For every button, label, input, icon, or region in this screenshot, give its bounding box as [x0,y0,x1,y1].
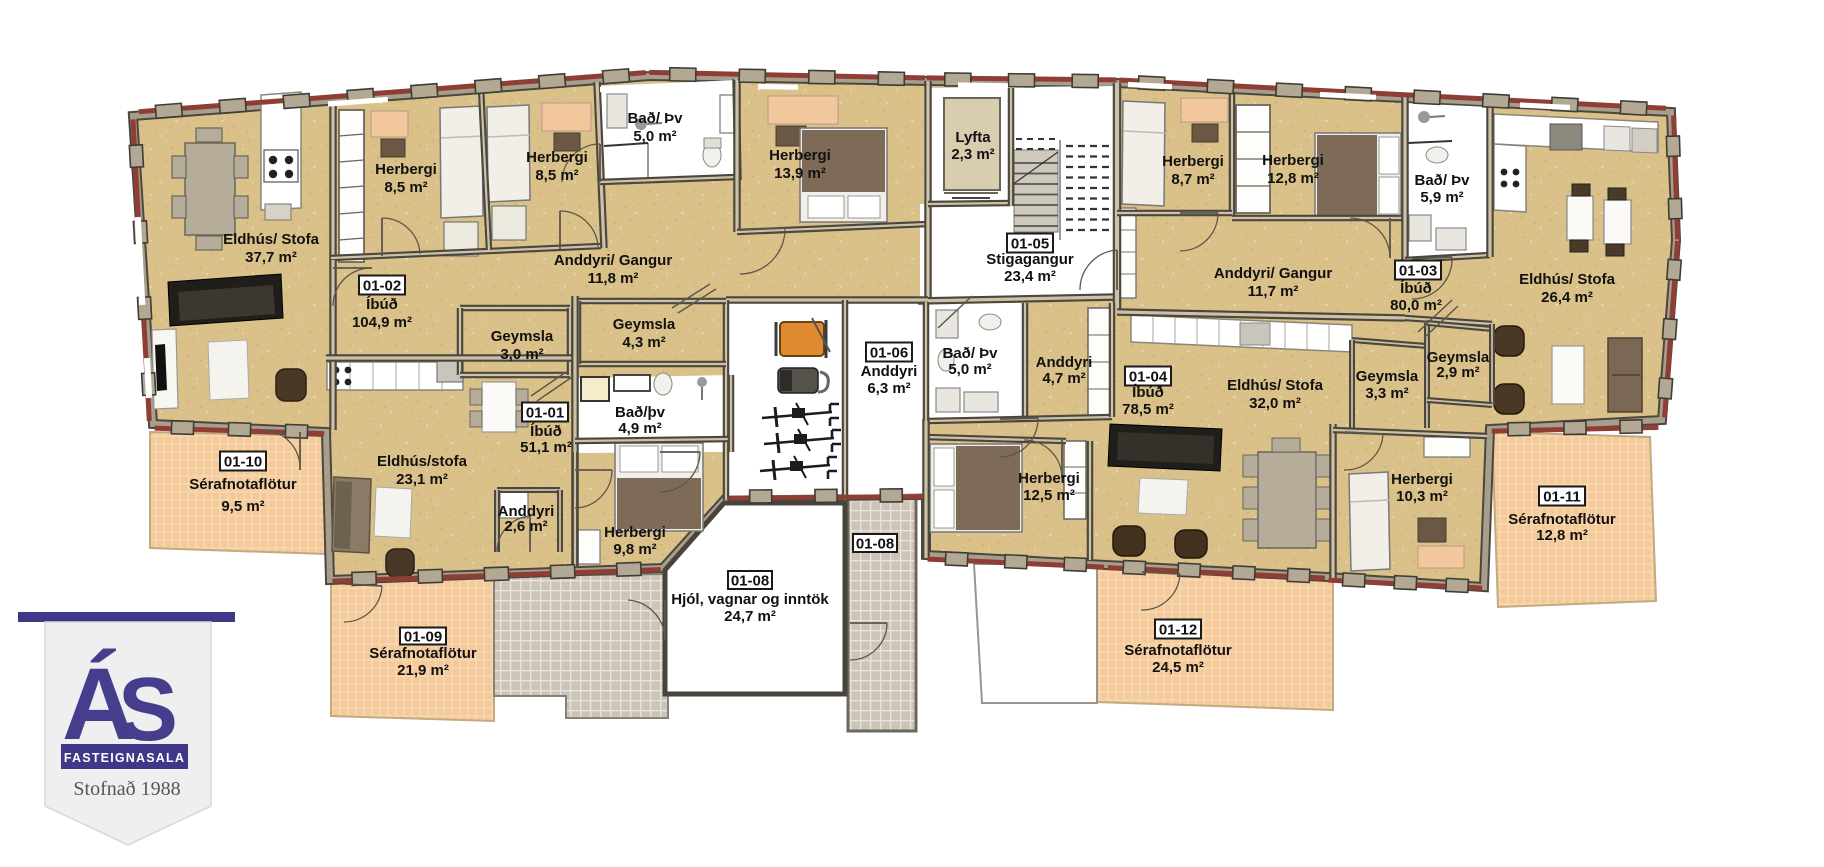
svg-text:Eldhús/ Stofa: Eldhús/ Stofa [223,231,319,248]
svg-text:Geymsla: Geymsla [491,328,554,345]
svg-text:Herbergi: Herbergi [526,149,588,166]
svg-text:11,7 m²: 11,7 m² [1248,283,1299,300]
svg-text:2,3 m²: 2,3 m² [951,146,994,163]
svg-text:01-08: 01-08 [731,573,769,590]
svg-text:01-03: 01-03 [1399,263,1437,280]
svg-text:01-12: 01-12 [1159,622,1197,639]
svg-text:Anddyri/ Gangur: Anddyri/ Gangur [554,252,673,269]
svg-text:Bað/ Þv: Bað/ Þv [627,110,683,127]
svg-text:Sérafnotaflötur: Sérafnotaflötur [189,476,297,493]
svg-text:01-02: 01-02 [363,278,401,295]
svg-text:37,7 m²: 37,7 m² [245,249,297,266]
svg-text:23,1 m²: 23,1 m² [396,471,448,488]
svg-text:FASTEIGNASALA: FASTEIGNASALA [64,751,185,765]
svg-text:Geymsla: Geymsla [613,316,676,333]
svg-text:80,0 m²: 80,0 m² [1390,297,1442,314]
svg-text:12,8 m²: 12,8 m² [1267,170,1319,187]
svg-text:3,3 m²: 3,3 m² [1365,385,1408,402]
svg-text:Herbergi: Herbergi [604,524,666,541]
svg-text:01-08: 01-08 [856,536,894,553]
svg-text:Stofnað 1988: Stofnað 1988 [73,778,180,800]
svg-text:32,0 m²: 32,0 m² [1249,395,1301,412]
svg-text:3,0 m²: 3,0 m² [500,346,543,363]
svg-text:4,3 m²: 4,3 m² [622,334,665,351]
svg-text:01-11: 01-11 [1543,489,1581,506]
svg-text:Hjól, vagnar og inntök: Hjól, vagnar og inntök [671,591,829,608]
svg-text:Bað/þv: Bað/þv [615,404,666,421]
svg-text:Eldhús/stofa: Eldhús/stofa [377,453,468,470]
svg-text:8,7 m²: 8,7 m² [1171,171,1214,188]
svg-text:01-09: 01-09 [404,629,442,646]
svg-text:24,5 m²: 24,5 m² [1152,659,1204,676]
svg-text:Eldhús/ Stofa: Eldhús/ Stofa [1227,377,1323,394]
svg-text:Bað/ Þv: Bað/ Þv [942,345,998,362]
svg-text:11,8 m²: 11,8 m² [588,270,639,287]
svg-text:4,7 m²: 4,7 m² [1042,370,1085,387]
svg-text:01-05: 01-05 [1011,236,1049,253]
svg-text:2,6 m²: 2,6 m² [504,518,547,535]
svg-text:12,5 m²: 12,5 m² [1023,487,1075,504]
svg-text:5,0 m²: 5,0 m² [948,361,991,378]
svg-text:104,9 m²: 104,9 m² [352,314,412,331]
svg-text:Anddyri/ Gangur: Anddyri/ Gangur [1214,265,1333,282]
svg-text:51,1 m²: 51,1 m² [520,439,572,456]
svg-text:Sérafnotaflötur: Sérafnotaflötur [369,645,477,662]
svg-text:13,9 m²: 13,9 m² [774,165,826,182]
svg-text:2,9 m²: 2,9 m² [1436,364,1479,381]
svg-text:6,3 m²: 6,3 m² [867,380,910,397]
svg-text:Sérafnotaflötur: Sérafnotaflötur [1508,511,1616,528]
svg-text:5,9 m²: 5,9 m² [1420,189,1463,206]
svg-text:Lyfta: Lyfta [955,129,991,146]
svg-text:Anddyri: Anddyri [861,363,918,380]
svg-text:Stigagangur: Stigagangur [986,251,1074,268]
svg-text:01-10: 01-10 [224,454,262,471]
svg-text:Herbergi: Herbergi [1018,470,1080,487]
svg-text:9,8 m²: 9,8 m² [613,541,656,558]
svg-text:Herbergi: Herbergi [375,161,437,178]
svg-text:10,3 m²: 10,3 m² [1396,488,1448,505]
svg-text:Íbúð: Íbúð [530,423,562,440]
svg-text:24,7 m²: 24,7 m² [724,608,776,625]
svg-text:26,4 m²: 26,4 m² [1541,289,1593,306]
svg-text:Íbúð: Íbúð [366,296,398,313]
svg-text:78,5 m²: 78,5 m² [1122,401,1174,418]
svg-text:Íbúð: Íbúð [1132,384,1164,401]
svg-text:01-01: 01-01 [526,405,564,422]
svg-text:Herbergi: Herbergi [1162,153,1224,170]
svg-text:Eldhús/ Stofa: Eldhús/ Stofa [1519,271,1615,288]
svg-text:21,9 m²: 21,9 m² [397,662,449,679]
svg-text:23,4 m²: 23,4 m² [1004,268,1056,285]
svg-text:Herbergi: Herbergi [769,147,831,164]
svg-text:Herbergi: Herbergi [1391,471,1453,488]
svg-text:Geymsla: Geymsla [1356,368,1419,385]
svg-text:8,5 m²: 8,5 m² [535,167,578,184]
svg-text:8,5 m²: 8,5 m² [384,179,427,196]
svg-text:Sérafnotaflötur: Sérafnotaflötur [1124,642,1232,659]
svg-text:4,9 m²: 4,9 m² [618,420,661,437]
svg-text:5,0 m²: 5,0 m² [633,128,676,145]
svg-text:Íbúð: Íbúð [1400,280,1432,297]
svg-text:Anddyri: Anddyri [1036,354,1093,371]
svg-text:Bað/ Þv: Bað/ Þv [1414,172,1470,189]
svg-text:12,8 m²: 12,8 m² [1536,527,1588,544]
svg-text:01-06: 01-06 [870,345,908,362]
svg-text:Herbergi: Herbergi [1262,152,1324,169]
svg-text:01-04: 01-04 [1129,369,1168,386]
svg-text:9,5 m²: 9,5 m² [221,498,264,515]
